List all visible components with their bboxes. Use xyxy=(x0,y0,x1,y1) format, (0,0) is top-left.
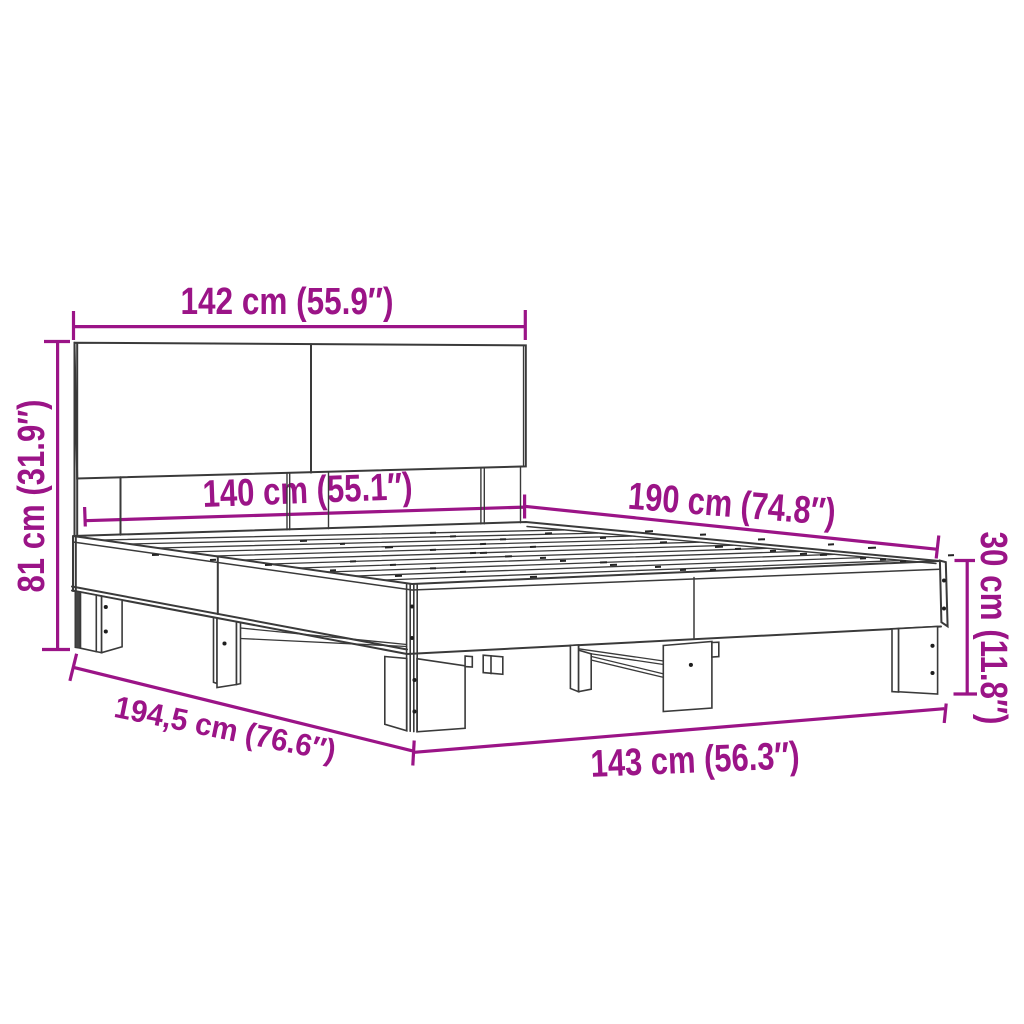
svg-text:81 cm (31.9″): 81 cm (31.9″) xyxy=(10,400,53,593)
svg-text:142 cm (55.9″): 142 cm (55.9″) xyxy=(181,280,394,323)
svg-text:143 cm (56.3″): 143 cm (56.3″) xyxy=(590,734,801,786)
svg-text:30 cm (11.8″): 30 cm (11.8″) xyxy=(972,532,1015,725)
